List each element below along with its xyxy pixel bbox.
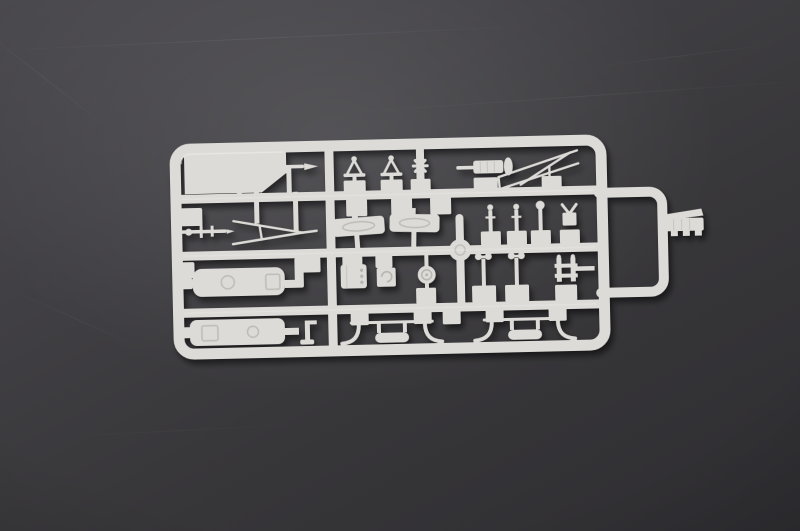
davit-arm — [342, 324, 359, 343]
sprue-gate-pad — [391, 198, 412, 215]
gate-stub — [182, 278, 193, 289]
scratch-mark — [0, 26, 112, 131]
pin-foot — [300, 339, 314, 344]
cradle-block — [375, 332, 409, 343]
mast-leg — [233, 220, 302, 235]
gate-pads-row2 — [346, 197, 451, 216]
part-anemometer — [508, 252, 526, 286]
sprue-svg — [168, 130, 723, 378]
part-cable-drum — [340, 264, 367, 289]
sprue-gate-pad — [430, 197, 451, 214]
sprue-gate-pad — [443, 310, 461, 324]
crossbar — [555, 273, 578, 278]
part-range-finder-dial — [417, 255, 436, 291]
box-body — [193, 267, 286, 297]
part-anemometer — [475, 253, 493, 287]
gate-stub — [411, 230, 416, 247]
ball — [536, 201, 545, 210]
crossarm — [511, 216, 521, 218]
mast-tip — [303, 231, 317, 233]
ball — [487, 204, 493, 210]
gate-stub — [382, 256, 387, 270]
barrel-tip — [227, 229, 235, 234]
cradle-block — [508, 329, 542, 340]
stem — [514, 210, 518, 232]
stem — [389, 176, 393, 182]
stem — [352, 176, 356, 182]
edge-tab — [180, 262, 194, 278]
rod-collar — [272, 164, 280, 170]
part-deckhouse-box — [181, 258, 304, 298]
gate-stub — [658, 227, 667, 232]
box-body — [190, 318, 286, 346]
yard-joint — [499, 177, 500, 189]
bracket-body — [562, 212, 576, 225]
box-body — [377, 268, 396, 287]
part-cross-fitting — [413, 158, 427, 174]
gate-stub — [285, 328, 299, 335]
scratch-mark — [341, 79, 800, 113]
scratch-mark — [6, 288, 143, 350]
part-ball-stanchion — [511, 204, 522, 232]
stem — [538, 209, 542, 231]
sprue-gate-pad — [531, 230, 551, 244]
scratch-mark — [0, 25, 550, 52]
ball — [513, 204, 519, 210]
bracket-foot — [695, 231, 702, 236]
cross-fitting — [234, 161, 237, 174]
sprue-shapes — [174, 141, 706, 348]
crossbar — [555, 263, 578, 268]
cross-fitting — [246, 163, 249, 172]
part-h-frame-bollard — [554, 254, 595, 282]
davit-arm — [475, 321, 492, 340]
sprue-gate-pad — [555, 284, 577, 300]
sprue-gate-pad — [505, 284, 529, 302]
sprue-gate-pad — [411, 179, 431, 193]
gate-riser — [294, 258, 304, 288]
plate-body — [332, 215, 385, 237]
bracket-foot — [683, 231, 690, 236]
cylinder-body — [473, 160, 503, 174]
sprue-gate-pad — [474, 177, 498, 192]
scratch-mark — [591, 43, 780, 67]
part-small-deck-gun — [176, 224, 235, 238]
scratch-mark — [60, 424, 300, 438]
gate-stub — [576, 266, 595, 271]
gate-stub — [286, 168, 292, 194]
axle — [475, 255, 491, 258]
sprue-gate-pad — [481, 231, 501, 245]
gun-barrel — [191, 229, 227, 233]
stub — [510, 320, 514, 330]
sprue-gate-pad — [542, 176, 562, 190]
post — [570, 257, 576, 281]
part-tripod-lamp-mast — [343, 156, 366, 183]
part-v-notch-bracket — [562, 204, 576, 225]
davit-arm — [558, 319, 575, 338]
mast — [514, 258, 519, 286]
mast-crossbar — [260, 226, 262, 240]
model-kit-sprue — [168, 130, 723, 378]
sprue-gate-pad — [472, 285, 496, 303]
lower-rod — [216, 174, 242, 178]
sprue-gate-pad — [507, 231, 527, 245]
plate-body — [389, 214, 439, 233]
axle — [508, 255, 524, 258]
mast — [481, 258, 486, 286]
stub — [377, 323, 381, 333]
bracket-body — [666, 218, 704, 232]
stub — [536, 319, 540, 329]
mast-leg — [233, 233, 303, 245]
gun-fitting — [211, 226, 214, 237]
sprue-gate-pad — [560, 229, 580, 243]
bracket-foot — [671, 231, 678, 236]
part-tripod-lamp-mast — [380, 155, 403, 182]
stub — [403, 322, 407, 332]
post — [556, 258, 562, 282]
part-searchlight-cylinder — [456, 157, 513, 176]
gate-stub — [181, 327, 191, 338]
edge-tab — [180, 208, 202, 226]
part-deckhouse-box — [181, 318, 300, 347]
v-arms — [562, 204, 576, 212]
rod-tip — [304, 163, 318, 170]
photo-background — [0, 0, 800, 531]
part-ball-stanchion — [485, 204, 496, 232]
crossarm — [485, 216, 495, 218]
stem — [425, 283, 429, 291]
stem — [488, 210, 492, 232]
part-pin-fitting — [300, 320, 318, 344]
barrel-rod — [456, 166, 474, 170]
gate-stub — [658, 220, 667, 225]
gun-fitting — [200, 225, 203, 238]
runner-col-a — [329, 150, 333, 347]
davit-arm — [425, 322, 442, 341]
part-ball-stanchion — [536, 201, 546, 232]
runner-col-c — [459, 218, 461, 305]
